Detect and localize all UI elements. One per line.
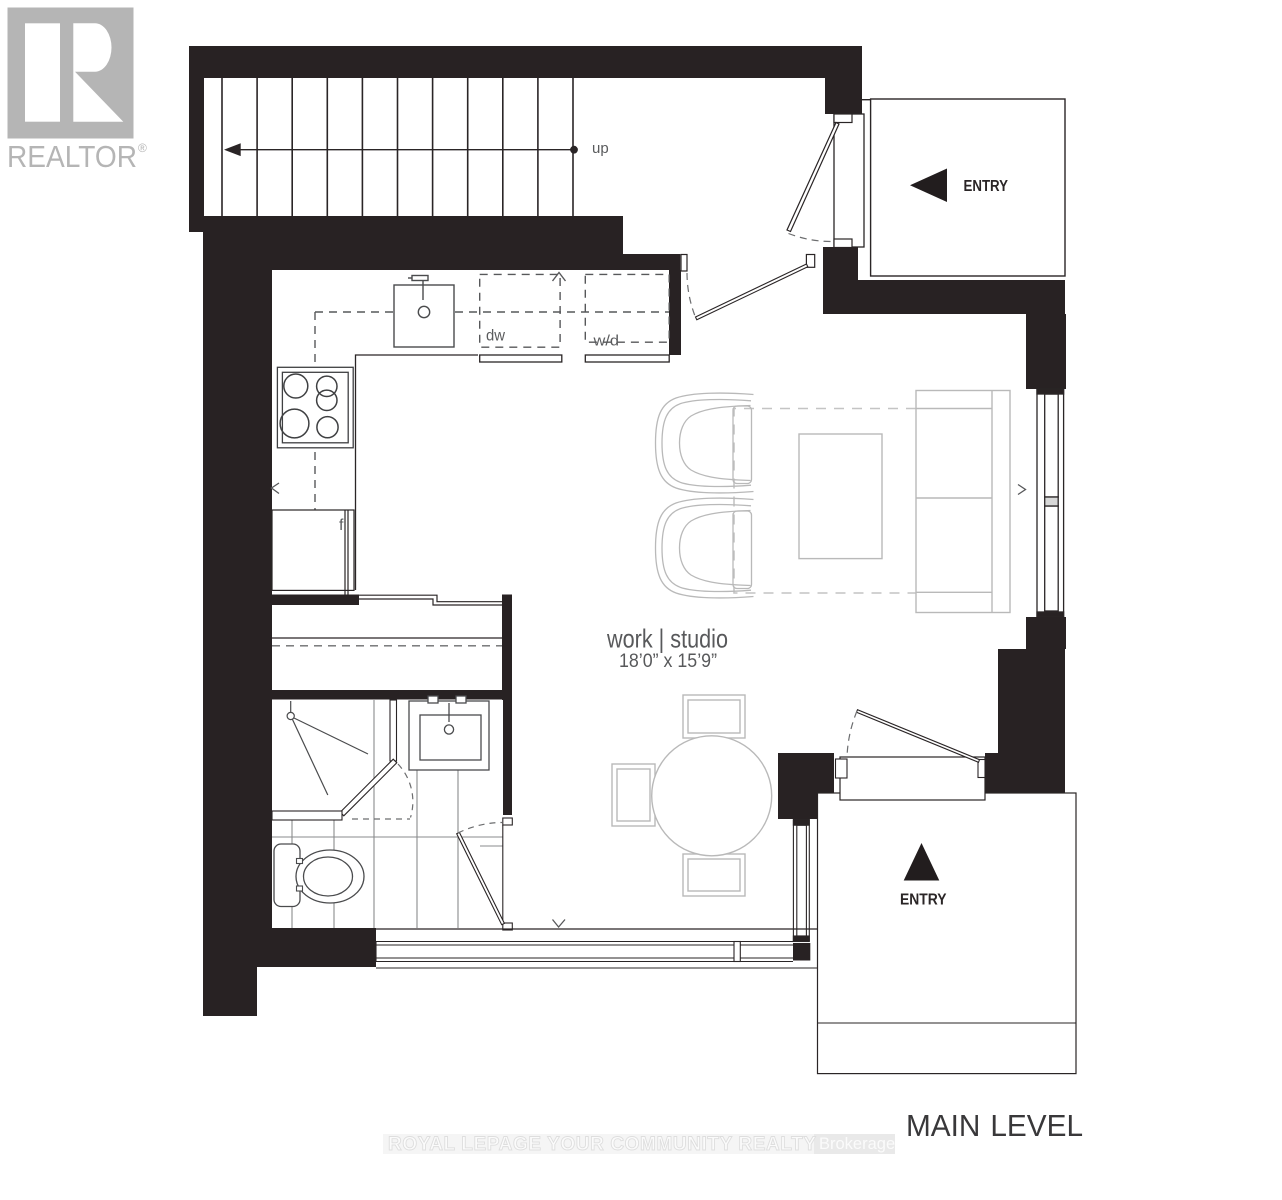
svg-text:ENTRY: ENTRY xyxy=(900,892,947,909)
svg-text:f: f xyxy=(339,517,344,534)
svg-text:REALTOR: REALTOR xyxy=(7,139,137,174)
svg-text:18’0” x 15’9”: 18’0” x 15’9” xyxy=(619,651,717,672)
svg-text:ROYAL LEPAGE YOUR COMMUNITY RE: ROYAL LEPAGE YOUR COMMUNITY REALTY xyxy=(388,1134,817,1155)
svg-text:Brokerage: Brokerage xyxy=(819,1135,895,1153)
svg-text:w/d: w/d xyxy=(592,333,619,350)
svg-text:ENTRY: ENTRY xyxy=(964,178,1009,195)
svg-text:MAIN LEVEL: MAIN LEVEL xyxy=(906,1108,1083,1143)
svg-text:dw: dw xyxy=(486,328,505,345)
svg-text:work | studio: work | studio xyxy=(606,624,728,654)
svg-text:up: up xyxy=(592,140,609,157)
svg-text:®: ® xyxy=(138,141,147,155)
